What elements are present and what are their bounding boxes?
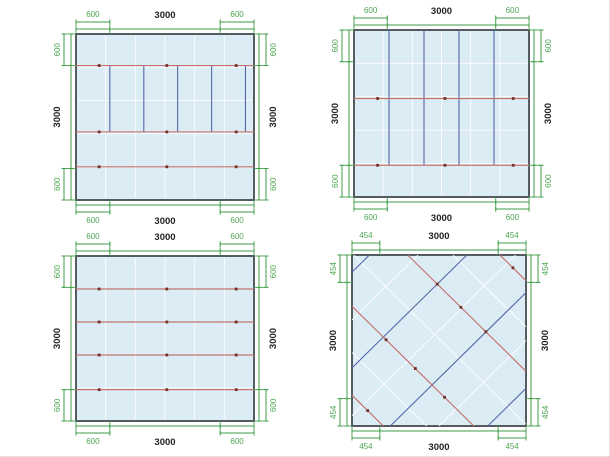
connector-dot [414, 367, 417, 370]
overall-dimension-label: 3000 [154, 232, 175, 243]
connector-dot [235, 321, 238, 324]
dimension-label: 454 [541, 261, 550, 275]
panel-drawing-2: 6003000600600300060060030006006003000600 [305, 0, 610, 228]
connector-dot [444, 97, 447, 100]
overall-dimension-label: 3000 [431, 6, 452, 17]
dimension-label: 454 [505, 442, 519, 451]
connector-dot [376, 97, 379, 100]
dimension-label: 600 [230, 216, 244, 225]
dimension-label: 454 [359, 231, 373, 240]
dimension-label: 600 [269, 264, 278, 278]
connector-dot [512, 164, 515, 167]
connector-dot [98, 131, 101, 134]
dimension-label: 600 [364, 6, 378, 15]
overall-dimension-label: 3000 [268, 328, 279, 349]
connector-dot [385, 338, 388, 341]
overall-dimension-label: 3000 [330, 103, 341, 124]
overall-dimension-label: 3000 [543, 103, 554, 124]
connector-dot [443, 396, 446, 399]
panel-option-top-left[interactable]: 6003000600600300060060030006006003000600 [0, 0, 305, 228]
dimension-label: 600 [230, 437, 244, 446]
dimension-label: 600 [506, 6, 520, 15]
overall-dimension-label: 3000 [52, 328, 63, 349]
connector-dot [235, 165, 238, 168]
overall-dimension-label: 3000 [154, 437, 175, 448]
dimension-label: 600 [86, 437, 100, 446]
connector-dot [165, 321, 168, 324]
overall-dimension-label: 3000 [428, 231, 449, 242]
connector-dot [366, 409, 369, 412]
dimension-label: 600 [331, 39, 340, 53]
connector-dot [376, 164, 379, 167]
overall-dimension-label: 3000 [328, 330, 339, 351]
dimension-label: 600 [230, 232, 244, 241]
connector-dot [444, 164, 447, 167]
dimension-label: 600 [53, 43, 62, 57]
drawing-canvas: 6003000600600300060060030006006003000600… [0, 0, 610, 457]
dimension-label: 600 [269, 398, 278, 412]
connector-dot [235, 64, 238, 67]
connector-dot [165, 288, 168, 291]
overall-dimension-label: 3000 [52, 106, 63, 127]
dimension-label: 600 [86, 216, 100, 225]
connector-dot [235, 131, 238, 134]
connector-dot [98, 64, 101, 67]
connector-dot [165, 388, 168, 391]
dimension-label: 454 [329, 261, 338, 275]
dimension-label: 600 [544, 174, 553, 188]
overall-dimension-label: 3000 [431, 213, 452, 224]
connector-dot [165, 131, 168, 134]
connector-dot [165, 354, 168, 357]
dimension-label: 600 [506, 213, 520, 222]
dimension-label: 600 [331, 174, 340, 188]
overall-dimension-label: 3000 [154, 10, 175, 21]
overall-dimension-label: 3000 [540, 330, 551, 351]
dimension-label: 600 [364, 213, 378, 222]
overall-dimension-label: 3000 [428, 442, 449, 453]
dimension-label: 600 [544, 39, 553, 53]
dimension-label: 454 [329, 405, 338, 419]
panel-option-bottom-right[interactable]: 4543000454454300045445430004544543000454 [305, 228, 610, 457]
dimension-label: 600 [269, 177, 278, 191]
connector-dot [460, 306, 463, 309]
overall-dimension-label: 3000 [268, 106, 279, 127]
connector-dot [98, 165, 101, 168]
dimension-label: 600 [53, 264, 62, 278]
connector-dot [484, 330, 487, 333]
connector-dot [98, 288, 101, 291]
panel-drawing-3: 6003000600600300060060030006006003000600 [0, 228, 305, 457]
dimension-label: 454 [359, 442, 373, 451]
connector-dot [436, 283, 439, 286]
connector-dot [235, 288, 238, 291]
connector-dot [98, 354, 101, 357]
dimension-label: 600 [53, 398, 62, 412]
connector-dot [512, 266, 515, 269]
connector-dot [98, 388, 101, 391]
dimension-label: 600 [53, 177, 62, 191]
panel-drawing-4: 4543000454454300045445430004544543000454 [305, 228, 610, 457]
panel-drawing-1: 6003000600600300060060030006006003000600 [0, 0, 305, 228]
panel-option-top-right[interactable]: 6003000600600300060060030006006003000600 [305, 0, 610, 228]
dimension-label: 600 [269, 43, 278, 57]
connector-dot [98, 321, 101, 324]
connector-dot [235, 354, 238, 357]
connector-dot [512, 97, 515, 100]
dimension-label: 600 [230, 10, 244, 19]
glass-panel [352, 255, 526, 426]
dimension-label: 454 [541, 405, 550, 419]
connector-dot [165, 165, 168, 168]
overall-dimension-label: 3000 [154, 216, 175, 227]
dimension-label: 600 [86, 232, 100, 241]
dimension-label: 600 [86, 10, 100, 19]
dimension-label: 454 [505, 231, 519, 240]
panel-option-bottom-left[interactable]: 6003000600600300060060030006006003000600 [0, 228, 305, 457]
connector-dot [165, 64, 168, 67]
connector-dot [235, 388, 238, 391]
